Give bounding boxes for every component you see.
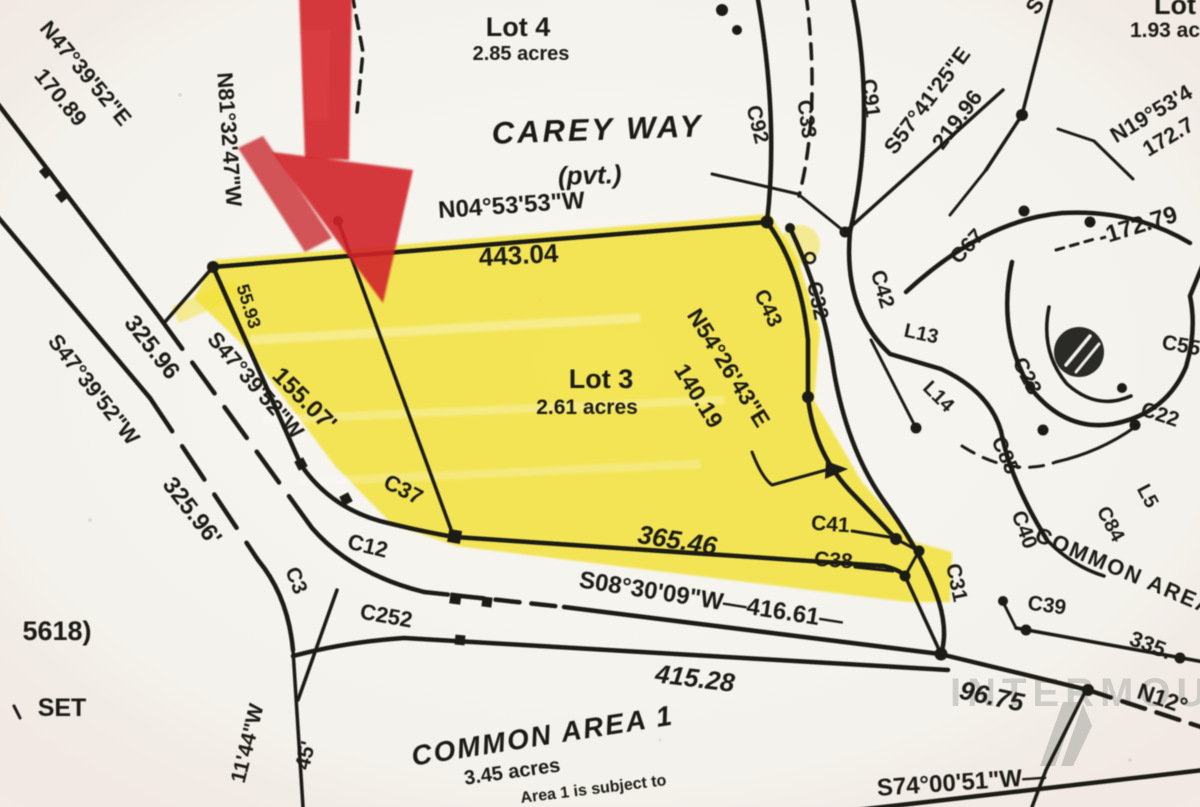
- label-curve-c38: C38: [813, 548, 853, 574]
- label-lot4-name: Lot 4: [486, 12, 551, 42]
- point-marker: [1082, 684, 1094, 696]
- label-lot3-area: 2.61 acres: [536, 396, 638, 419]
- point-marker: [1016, 109, 1028, 121]
- point-marker: [1085, 217, 1096, 228]
- point-marker: [207, 261, 219, 273]
- label-curve-c91: C91: [857, 78, 885, 119]
- point-marker: [1038, 425, 1049, 436]
- point-marker: [1130, 420, 1141, 431]
- point-marker: [890, 533, 902, 545]
- scan-speckle: [1128, 758, 1132, 762]
- label-ref-5618: 5618): [22, 616, 91, 646]
- scan-speckle: [658, 738, 661, 741]
- label-lot-top-right-acres: 1.93 ac: [1130, 19, 1200, 42]
- label-lot3-name: Lot 3: [569, 364, 634, 394]
- point-marker: [1175, 653, 1186, 664]
- label-set: SET: [38, 694, 87, 722]
- label-curve-c41: C41: [810, 512, 850, 538]
- point-marker: [900, 571, 911, 582]
- point-marker: [716, 4, 728, 16]
- point-marker: [802, 391, 814, 403]
- label-street-name: CAREY WAY: [491, 108, 704, 150]
- point-marker: [732, 25, 742, 35]
- scan-speckle: [88, 518, 92, 522]
- scan-speckle: [178, 93, 182, 97]
- point-marker: [447, 529, 462, 544]
- point-marker: [761, 216, 774, 229]
- point-marker: [840, 227, 851, 238]
- point-marker: [449, 592, 461, 604]
- point-marker: [455, 635, 466, 646]
- plat-map-scan: INTERMOUNTAIN: [0, 0, 1200, 807]
- label-lot-top-right: Lot: [1154, 0, 1196, 20]
- plat-map-canvas: INTERMOUNTAIN: [0, 0, 1200, 807]
- label-distance-443: 443.04: [478, 238, 560, 272]
- point-marker: [1019, 206, 1030, 217]
- point-marker: [785, 223, 795, 233]
- point-marker: [914, 546, 925, 557]
- point-marker: [911, 423, 922, 434]
- point-marker: [935, 648, 948, 661]
- point-marker: [1117, 383, 1127, 393]
- label-street-type: (pvt.): [557, 159, 622, 191]
- point-marker: [998, 596, 1008, 606]
- cul-de-sac-center-symbol: [1054, 327, 1104, 377]
- label-lot4-area: 2.85 acres: [473, 43, 570, 65]
- point-marker: [1021, 625, 1032, 636]
- point-marker: [481, 596, 492, 607]
